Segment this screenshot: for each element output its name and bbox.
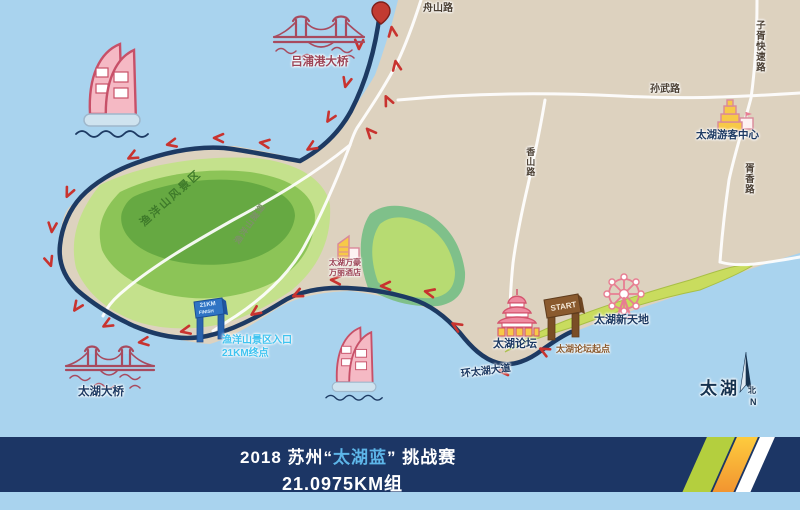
event-title-part1: 2018 苏州“ bbox=[240, 448, 333, 467]
event-title-banner: 2018 苏州“太湖蓝” 挑战赛 21.0975KM组 bbox=[0, 437, 800, 492]
label-marriott-hotel: 太湖万豪 万丽酒店 bbox=[329, 258, 361, 278]
label-finish-point-line1: 渔洋山景区入口 bbox=[222, 335, 292, 348]
label-lupugang-bridge: 吕浦港大桥 bbox=[291, 55, 349, 69]
label-taihu-bridge: 太湖大桥 bbox=[78, 385, 124, 399]
event-title-text: 2018 苏州“太湖蓝” 挑战赛 21.0975KM组 bbox=[240, 443, 800, 492]
label-finish-point-line2: 21KM终点 bbox=[222, 348, 292, 361]
label-zixu-expressway: 子胥快速路 bbox=[753, 20, 765, 73]
map-canvas: 21KM FINISH START bbox=[0, 0, 800, 510]
label-xuxiang-road: 胥香路 bbox=[742, 163, 754, 195]
race-route-map: 21KM FINISH START 舟山路 子胥快速路 孙武路 太湖游客中心 胥… bbox=[0, 0, 800, 510]
label-taihu-forum: 太湖论坛 bbox=[493, 338, 537, 352]
label-sunwu-road: 孙武路 bbox=[650, 84, 680, 97]
label-compass-north-en: N bbox=[750, 397, 757, 408]
label-visitor-center: 太湖游客中心 bbox=[696, 129, 759, 142]
event-title-line1: 2018 苏州“太湖蓝” 挑战赛 bbox=[240, 443, 800, 468]
event-title-line2: 21.0975KM组 bbox=[282, 470, 800, 492]
label-xiangshan-road: 香山路 bbox=[524, 147, 535, 177]
label-forum-start-point: 太湖论坛起点 bbox=[556, 344, 610, 355]
label-marriott-hotel-line1: 太湖万豪 bbox=[329, 258, 361, 268]
event-title-part3: ” 挑战赛 bbox=[387, 448, 456, 467]
label-taihu-xintiandi: 太湖新天地 bbox=[594, 314, 649, 328]
event-title-highlight: 太湖蓝 bbox=[333, 448, 387, 467]
label-finish-point: 渔洋山景区入口 21KM终点 bbox=[222, 335, 292, 360]
label-zhoushan-road: 舟山路 bbox=[423, 3, 453, 16]
label-compass-north-cn: 北 bbox=[748, 386, 756, 396]
label-lake-name: 太湖 bbox=[700, 378, 740, 399]
label-marriott-hotel-line2: 万丽酒店 bbox=[329, 268, 361, 278]
